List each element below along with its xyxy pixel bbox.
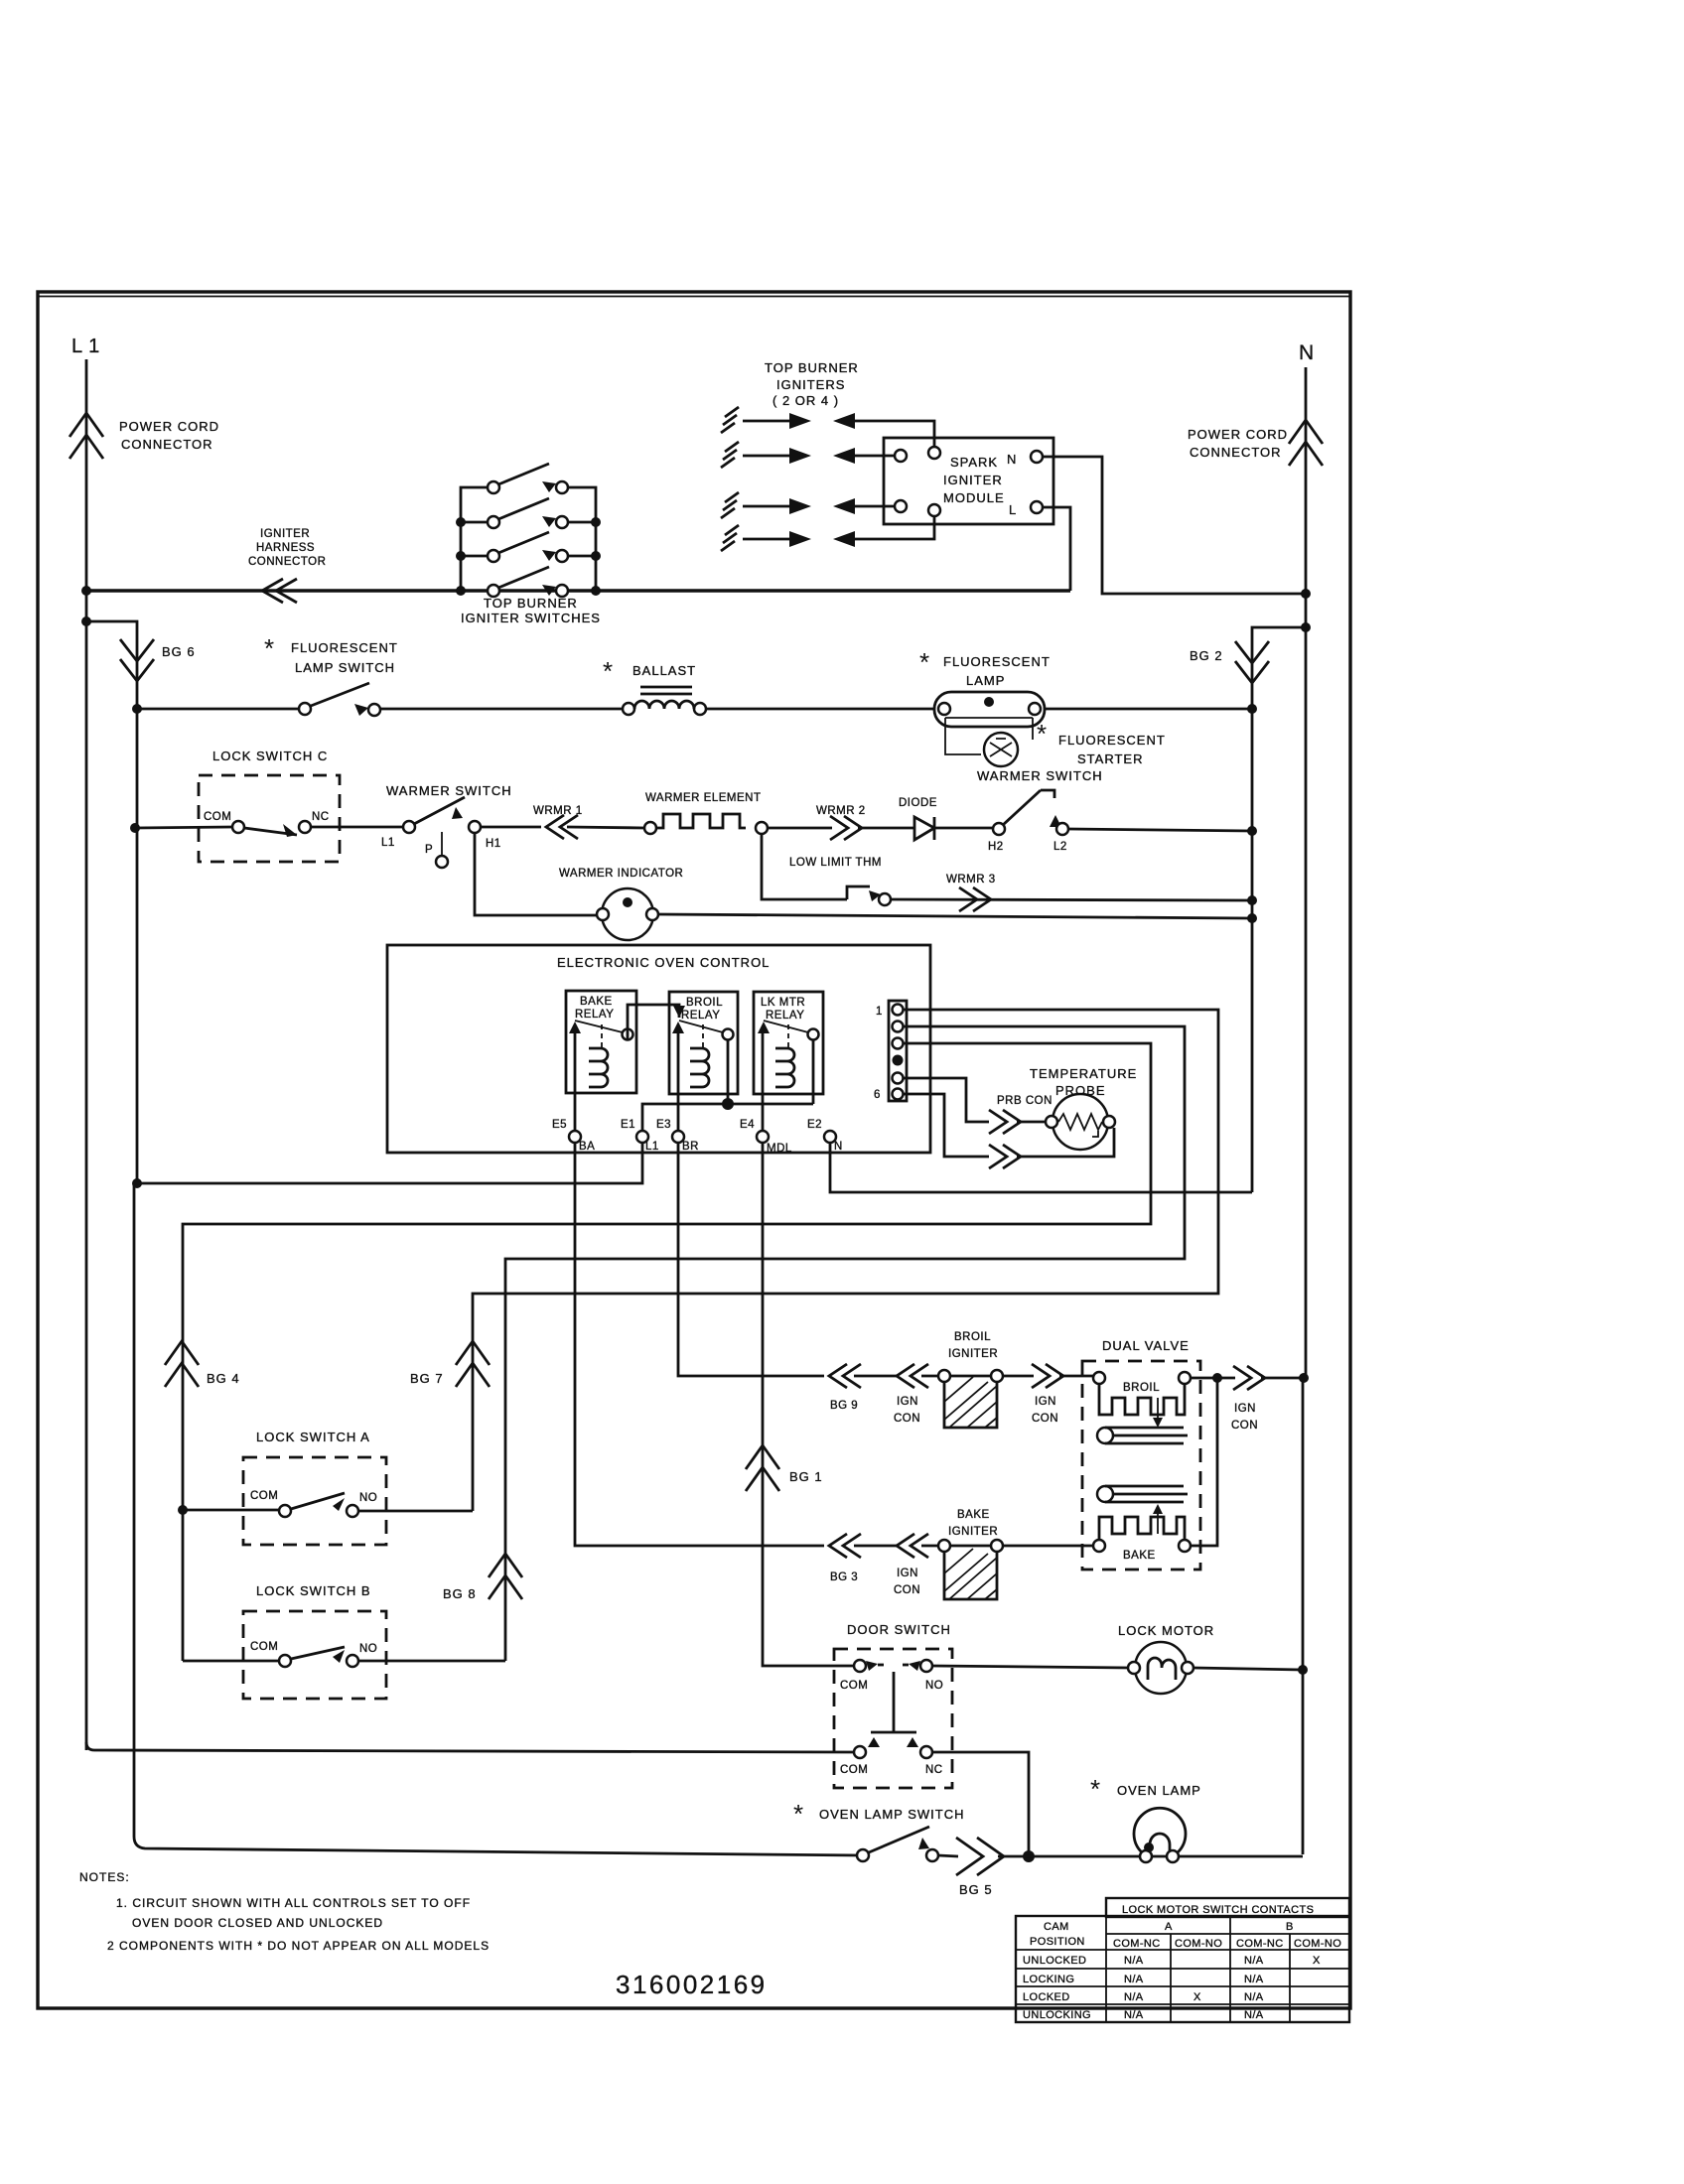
svg-text:LOCK SWITCH C: LOCK SWITCH C: [212, 749, 328, 763]
svg-text:OVEN LAMP: OVEN LAMP: [1117, 1783, 1201, 1798]
svg-text:WARMER SWITCH: WARMER SWITCH: [977, 768, 1103, 783]
svg-text:N: N: [1299, 341, 1314, 364]
svg-text:BG 4: BG 4: [207, 1371, 240, 1386]
svg-text:2 COMPONENTS WITH * DO NOT AP: 2 COMPONENTS WITH * DO NOT APPEAR ON ALL…: [107, 1939, 490, 1953]
svg-text:E5: E5: [552, 1119, 567, 1131]
svg-text:BALLAST: BALLAST: [632, 663, 696, 678]
svg-text:N/A: N/A: [1124, 1955, 1144, 1967]
svg-text:IGNITER: IGNITER: [943, 473, 1003, 487]
svg-text:N/A: N/A: [1124, 2009, 1144, 2021]
svg-text:*: *: [264, 633, 274, 663]
svg-text:LAMP: LAMP: [966, 673, 1005, 688]
svg-text:COM: COM: [250, 1490, 278, 1502]
svg-text:N/A: N/A: [1244, 1991, 1264, 2003]
svg-text:BROIL: BROIL: [686, 997, 723, 1009]
svg-text:OVEN DOOR CLOSED AND UNLOCKED: OVEN DOOR CLOSED AND UNLOCKED: [132, 1916, 383, 1930]
svg-text:L2: L2: [1053, 841, 1067, 853]
svg-text:BG 5: BG 5: [959, 1882, 993, 1897]
svg-text:LOCKING: LOCKING: [1023, 1974, 1074, 1985]
svg-text:PRB CON: PRB CON: [997, 1095, 1052, 1107]
svg-text:IGN: IGN: [1035, 1396, 1056, 1408]
svg-text:E4: E4: [740, 1119, 755, 1131]
svg-text:LOCKED: LOCKED: [1023, 1991, 1070, 2003]
svg-text:COM-NC: COM-NC: [1236, 1938, 1284, 1950]
svg-text:BG 6: BG 6: [162, 644, 196, 659]
svg-text:IGNITER: IGNITER: [948, 1526, 998, 1538]
svg-text:N/A: N/A: [1124, 1974, 1144, 1985]
svg-text:BG 2: BG 2: [1190, 648, 1223, 663]
svg-text:UNLOCKING: UNLOCKING: [1023, 2009, 1091, 2021]
svg-text:WARMER INDICATOR: WARMER INDICATOR: [559, 868, 683, 880]
svg-text:N/A: N/A: [1244, 1955, 1264, 1967]
svg-text:IGN: IGN: [1234, 1403, 1256, 1415]
svg-text:RELAY: RELAY: [766, 1010, 804, 1022]
svg-text:BG 7: BG 7: [410, 1371, 444, 1386]
svg-text:HARNESS: HARNESS: [256, 542, 315, 554]
svg-text:DOOR SWITCH: DOOR SWITCH: [847, 1622, 951, 1637]
svg-text:FLUORESCENT: FLUORESCENT: [1058, 733, 1166, 748]
svg-text:IGNITERS: IGNITERS: [776, 377, 845, 392]
svg-text:BR: BR: [682, 1141, 699, 1153]
svg-text:BG 3: BG 3: [830, 1571, 858, 1583]
svg-text:NC: NC: [312, 811, 330, 823]
svg-text:COM-NO: COM-NO: [1175, 1938, 1222, 1950]
svg-text:*: *: [1037, 719, 1047, 749]
svg-text:BG 9: BG 9: [830, 1400, 858, 1412]
svg-text:LAMP SWITCH: LAMP SWITCH: [295, 660, 395, 675]
svg-text:BAKE: BAKE: [957, 1509, 990, 1521]
svg-text:WRMR 2: WRMR 2: [816, 805, 866, 817]
svg-text:BROIL: BROIL: [1123, 1382, 1160, 1394]
svg-text:BA: BA: [579, 1141, 595, 1153]
svg-text:LOCK MOTOR: LOCK MOTOR: [1118, 1623, 1214, 1638]
svg-text:H2: H2: [988, 841, 1004, 853]
svg-text:COM: COM: [840, 1764, 868, 1776]
svg-text:BROIL: BROIL: [954, 1331, 991, 1343]
svg-text:DUAL VALVE: DUAL VALVE: [1102, 1338, 1190, 1353]
svg-text:L: L: [1009, 502, 1017, 517]
svg-text:LOCK SWITCH A: LOCK SWITCH A: [256, 1430, 370, 1444]
svg-text:E3: E3: [656, 1119, 671, 1131]
svg-text:6: 6: [874, 1089, 881, 1101]
svg-text:L1: L1: [71, 336, 105, 357]
svg-text:CON: CON: [894, 1413, 920, 1425]
svg-text:N/A: N/A: [1244, 1974, 1264, 1985]
svg-text:FLUORESCENT: FLUORESCENT: [291, 640, 398, 655]
svg-text:RELAY: RELAY: [575, 1009, 614, 1021]
svg-text:COM: COM: [840, 1680, 868, 1692]
svg-text:*: *: [919, 647, 929, 677]
svg-text:X: X: [1193, 1991, 1201, 2003]
svg-text:COM-NO: COM-NO: [1294, 1938, 1341, 1950]
svg-text:CONNECTOR: CONNECTOR: [121, 437, 213, 452]
svg-text:RELAY: RELAY: [681, 1010, 720, 1022]
svg-text:BAKE: BAKE: [1123, 1550, 1156, 1562]
svg-text:NO: NO: [359, 1643, 377, 1655]
svg-text:CONNECTOR: CONNECTOR: [1190, 445, 1282, 460]
svg-text:BG 1: BG 1: [789, 1469, 823, 1484]
svg-text:POWER CORD: POWER CORD: [119, 419, 219, 434]
svg-text:POSITION: POSITION: [1030, 1936, 1085, 1948]
svg-text:MDL: MDL: [767, 1143, 792, 1155]
svg-text:316002169: 316002169: [616, 1970, 768, 1999]
svg-text:L1: L1: [381, 837, 395, 849]
svg-text:WARMER ELEMENT: WARMER ELEMENT: [645, 792, 761, 804]
svg-text:NOTES:: NOTES:: [79, 1870, 130, 1884]
svg-text:CONNECTOR: CONNECTOR: [248, 556, 326, 568]
svg-text:B: B: [1286, 1921, 1294, 1933]
svg-text:BAKE: BAKE: [580, 996, 613, 1008]
svg-text:N: N: [1007, 452, 1017, 467]
svg-text:SPARK: SPARK: [950, 455, 998, 470]
svg-text:CON: CON: [894, 1584, 920, 1596]
svg-text:N/A: N/A: [1244, 2009, 1264, 2021]
svg-text:OVEN LAMP SWITCH: OVEN LAMP SWITCH: [819, 1807, 965, 1822]
svg-text:TEMPERATURE: TEMPERATURE: [1030, 1066, 1137, 1081]
svg-text:IGNITER: IGNITER: [948, 1348, 998, 1360]
svg-text:POWER CORD: POWER CORD: [1188, 427, 1288, 442]
svg-text:COM: COM: [250, 1641, 278, 1653]
svg-text:IGNITER SWITCHES: IGNITER SWITCHES: [461, 611, 601, 625]
svg-text:*: *: [603, 656, 613, 686]
svg-text:LK MTR: LK MTR: [761, 997, 805, 1009]
svg-text:LOW LIMIT THM: LOW LIMIT THM: [789, 857, 882, 869]
svg-text:X: X: [1313, 1955, 1321, 1967]
svg-text:LOCK SWITCH B: LOCK SWITCH B: [256, 1583, 371, 1598]
svg-text:CAM: CAM: [1044, 1921, 1069, 1933]
svg-text:LOCK MOTOR SWITCH CONTACTS: LOCK MOTOR SWITCH CONTACTS: [1122, 1904, 1314, 1916]
svg-text:TOP BURNER: TOP BURNER: [765, 360, 859, 375]
svg-text:MODULE: MODULE: [943, 490, 1005, 505]
svg-text:1. CIRCUIT SHOWN WITH ALL CONT: 1. CIRCUIT SHOWN WITH ALL CONTROLS SET T…: [116, 1896, 471, 1910]
svg-text:*: *: [1090, 1774, 1100, 1804]
svg-text:( 2 OR 4 ): ( 2 OR 4 ): [772, 393, 839, 408]
svg-text:N: N: [834, 1141, 843, 1153]
svg-text:WRMR 3: WRMR 3: [946, 874, 996, 886]
svg-text:BG 8: BG 8: [443, 1586, 477, 1601]
svg-text:L1: L1: [645, 1141, 659, 1153]
svg-text:WARMER SWITCH: WARMER SWITCH: [386, 783, 512, 798]
svg-text:E2: E2: [807, 1119, 822, 1131]
svg-text:IGN: IGN: [897, 1568, 918, 1579]
svg-text:UNLOCKED: UNLOCKED: [1023, 1955, 1086, 1967]
svg-text:IGNITER: IGNITER: [260, 528, 310, 540]
svg-text:H1: H1: [486, 838, 501, 850]
svg-text:TOP BURNER: TOP BURNER: [484, 596, 578, 611]
svg-text:N/A: N/A: [1124, 1991, 1144, 2003]
svg-text:E1: E1: [621, 1119, 635, 1131]
svg-text:DIODE: DIODE: [899, 797, 937, 809]
svg-text:CON: CON: [1032, 1413, 1058, 1425]
svg-text:P: P: [425, 844, 433, 856]
svg-text:NC: NC: [925, 1764, 943, 1776]
svg-text:COM: COM: [204, 811, 231, 823]
svg-text:STARTER: STARTER: [1077, 751, 1143, 766]
svg-text:CON: CON: [1231, 1420, 1258, 1432]
svg-text:NO: NO: [925, 1680, 943, 1692]
svg-text:ELECTRONIC OVEN CONTROL: ELECTRONIC OVEN CONTROL: [557, 955, 770, 970]
svg-text:*: *: [793, 1799, 803, 1829]
svg-text:IGN: IGN: [897, 1396, 918, 1408]
svg-text:FLUORESCENT: FLUORESCENT: [943, 654, 1051, 669]
svg-text:1: 1: [876, 1006, 883, 1018]
svg-text:NO: NO: [359, 1492, 377, 1504]
svg-text:COM-NC: COM-NC: [1113, 1938, 1161, 1950]
svg-text:A: A: [1165, 1921, 1173, 1933]
